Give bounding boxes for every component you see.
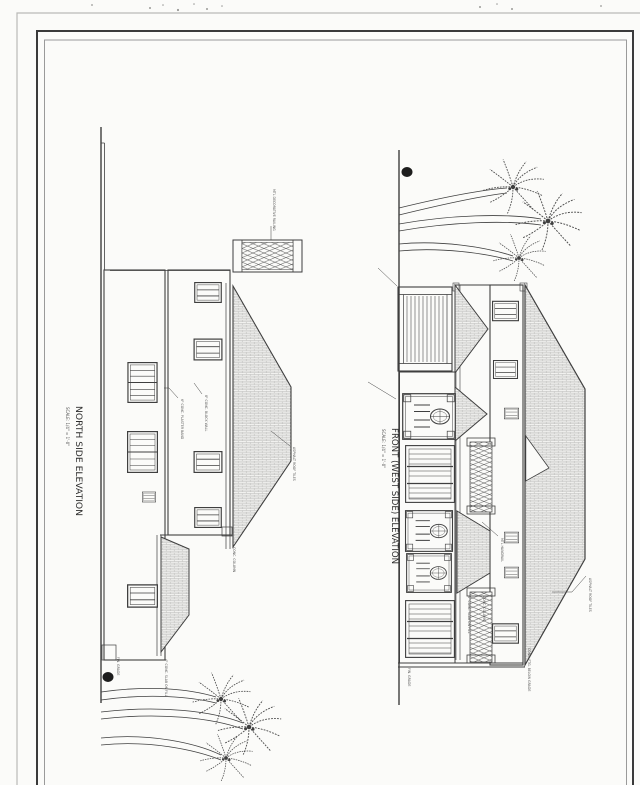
annotation: CONC. COLUMN: [482, 596, 486, 622]
annotation: 8" CONC. BLOCK WALL: [204, 395, 208, 431]
annotation: FIN. GRADE: [407, 668, 411, 686]
annotation: 6" CONC. PLASTER BAND: [180, 399, 184, 440]
drawing-scale: SCALE: 1/4" = 1'-0": [65, 407, 70, 446]
annotation: MTL HANDRAIL: [500, 538, 504, 562]
annotation: MTL DECORATIVE RAILING: [272, 189, 276, 231]
elevation-drawing-svg: MTL DECORATIVE RAILING 6" CONC. PLASTER …: [0, 0, 640, 785]
scan-blob: [103, 672, 114, 682]
annotation: ASPHALT ROOF TILES: [292, 447, 296, 481]
architectural-drawing-sheet: MTL DECORATIVE RAILING 6" CONC. PLASTER …: [0, 0, 640, 785]
drawing-scale: SCALE: 1/4" = 1'-0": [381, 429, 386, 468]
scan-blob: [402, 167, 413, 177]
annotation: ASPHALT ROOF TILES: [588, 578, 592, 612]
drawing-title: FRONT (WEST SIDE) ELEVATION: [389, 428, 399, 564]
annotation: CONC. FTG. BELOW GRADE: [527, 648, 531, 691]
north-roof-railing: [233, 240, 302, 272]
annotation: 4" CONC. SLAB ON FILL: [467, 596, 471, 634]
annotation: FIN. GRADE: [116, 657, 120, 675]
drawing-title: NORTH SIDE ELEVATION: [73, 406, 84, 516]
annotation: 4" CONC. SLAB ON FILL: [164, 659, 168, 697]
annotation: CONC. COLUMN: [232, 547, 236, 573]
